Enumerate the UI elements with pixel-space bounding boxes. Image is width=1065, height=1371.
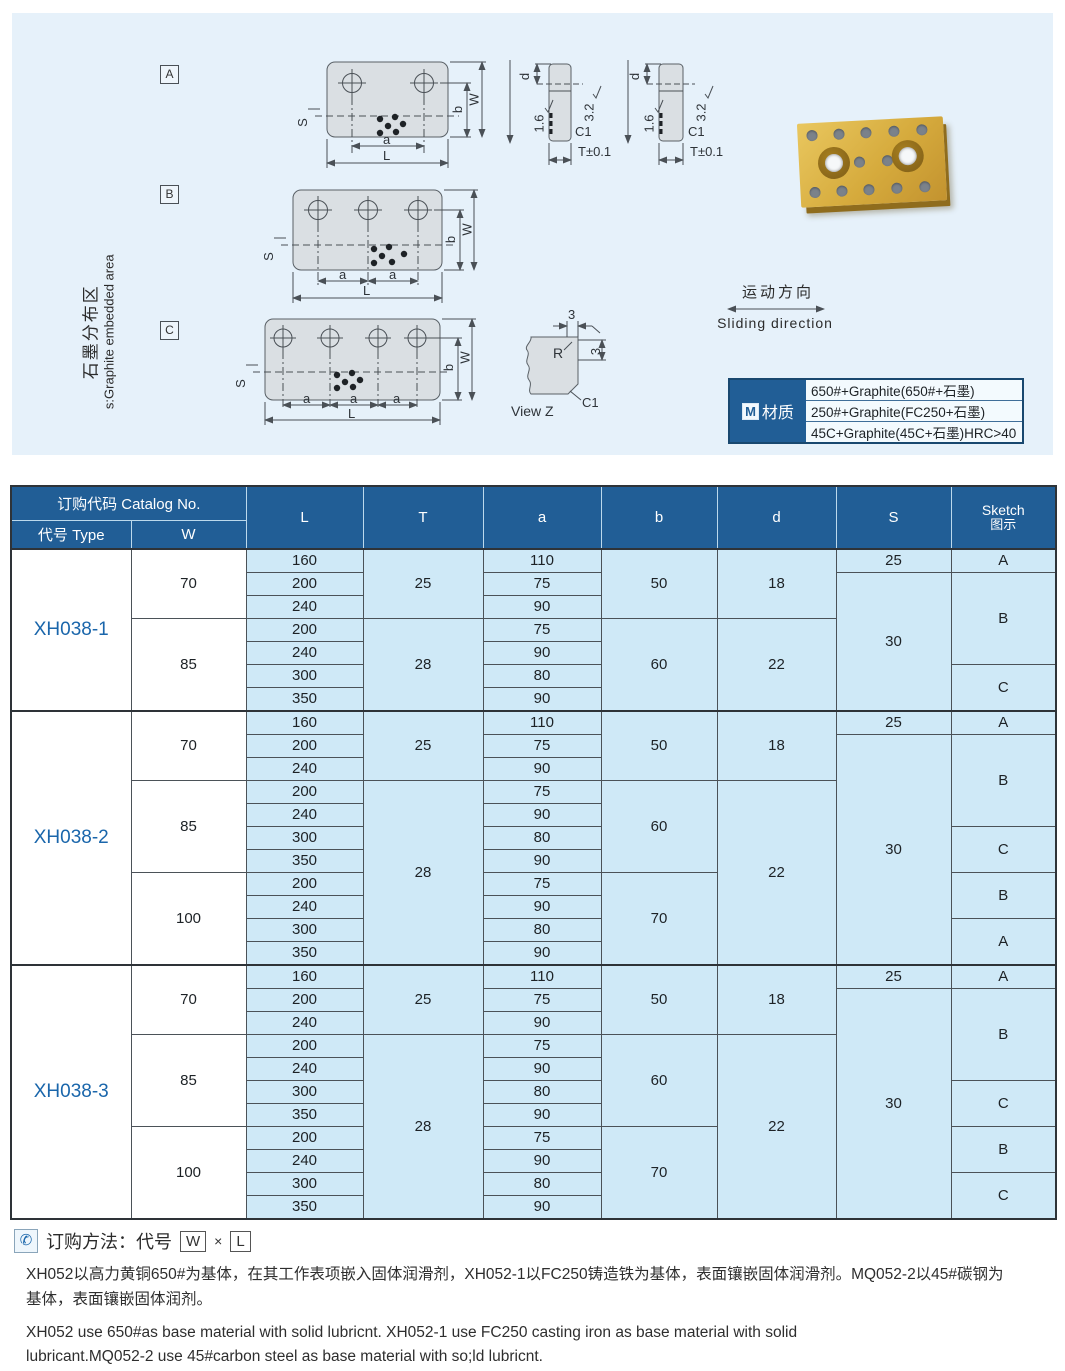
spec-cell: 90 xyxy=(483,596,601,619)
spec-cell: 350 xyxy=(246,1196,363,1220)
header-col-d: d xyxy=(717,486,836,549)
header-col-w: W xyxy=(131,521,246,550)
spec-cell: B xyxy=(951,989,1056,1081)
spec-cell: 25 xyxy=(363,549,483,619)
spec-cell: 90 xyxy=(483,1150,601,1173)
spec-cell: 300 xyxy=(246,665,363,688)
spec-table: 订购代码 Catalog No. L T a b d S Sketch 图示 代… xyxy=(10,485,1057,1220)
dim-label-w: W xyxy=(458,351,473,363)
view-tag-b: B xyxy=(160,185,179,204)
graphite-area-caption-cn: 石墨分布区 xyxy=(80,217,101,447)
footer: ✆ 订购方法：代号 W × L XH052以高力黄铜650#为基体，在其工作表项… xyxy=(14,1228,1050,1369)
order-method-label: 订购方法：代号 xyxy=(46,1228,172,1254)
spec-cell: 75 xyxy=(483,1035,601,1058)
spec-cell: 85 xyxy=(131,1035,246,1127)
dim-label-a: a xyxy=(383,132,390,147)
spec-cell: 300 xyxy=(246,919,363,942)
spec-cell: 100 xyxy=(131,873,246,966)
dim-label-l: L xyxy=(363,283,370,298)
type-cell: XH038-3 xyxy=(11,965,131,1219)
spec-cell: 80 xyxy=(483,919,601,942)
spec-cell: 28 xyxy=(363,781,483,966)
material-table: M 材质 650#+Graphite(650#+石墨) 250#+Graphit… xyxy=(728,378,1024,444)
spec-cell: 300 xyxy=(246,1081,363,1104)
view-z-label: View Z xyxy=(511,403,554,419)
dim-label-a: a xyxy=(303,391,310,406)
spec-table-body: XH038-17016025110501825A2007530B24090852… xyxy=(11,549,1056,1219)
order-code-w-box: W xyxy=(180,1231,206,1252)
spec-cell: 75 xyxy=(483,989,601,1012)
dim-label-l: L xyxy=(348,406,355,421)
spec-cell: 200 xyxy=(246,1127,363,1150)
spec-cell: 240 xyxy=(246,896,363,919)
spec-cell: 50 xyxy=(601,549,717,619)
spec-cell: C xyxy=(951,1081,1056,1127)
spec-cell: 90 xyxy=(483,1058,601,1081)
drawing-panel: 石墨分布区 s:Graphite embedded area A B C S a… xyxy=(12,13,1053,455)
header-col-a: a xyxy=(483,486,601,549)
spec-cell: 30 xyxy=(836,573,951,712)
spec-cell: 50 xyxy=(601,711,717,781)
spec-cell: 160 xyxy=(246,549,363,573)
spec-cell: 300 xyxy=(246,1173,363,1196)
spec-cell: 350 xyxy=(246,1104,363,1127)
dim-label-c1: C1 xyxy=(688,124,705,139)
graphite-area-caption-en: s:Graphite embedded area xyxy=(102,217,118,447)
dim-label-t: T±0.1 xyxy=(690,144,723,159)
dim-label-d: d xyxy=(517,73,532,80)
spec-cell: A xyxy=(951,919,1056,966)
dim-label-t: T±0.1 xyxy=(578,144,611,159)
spec-cell: 100 xyxy=(131,1127,246,1220)
spec-cell: 90 xyxy=(483,804,601,827)
dim-label-s: S xyxy=(295,118,310,127)
dim-label-l: L xyxy=(383,148,390,163)
spec-cell: 60 xyxy=(601,781,717,873)
dim-label-16: 1.6 xyxy=(642,114,657,132)
spec-cell: C xyxy=(951,827,1056,873)
mounting-hole xyxy=(817,146,851,180)
dim-label-b: b xyxy=(450,106,465,113)
description-en: XH052 use 650#as base material with soli… xyxy=(26,1321,886,1369)
dim-label-c1: C1 xyxy=(582,395,599,410)
spec-cell: 50 xyxy=(601,965,717,1035)
spec-cell: B xyxy=(951,735,1056,827)
graphite-area-caption: 石墨分布区 s:Graphite embedded area xyxy=(80,217,118,447)
spec-cell: 70 xyxy=(131,549,246,619)
type-cell: XH038-1 xyxy=(11,549,131,711)
sliding-direction-cn: 运动方向 xyxy=(728,281,828,302)
material-label: M 材质 xyxy=(730,380,806,442)
spec-cell: 90 xyxy=(483,758,601,781)
spec-cell: 70 xyxy=(131,711,246,781)
dim-label-c1: C1 xyxy=(575,124,592,139)
spec-cell: 28 xyxy=(363,619,483,712)
sliding-direction-en: Sliding direction xyxy=(710,315,840,331)
dim-label-3: 3 xyxy=(588,348,603,355)
spec-cell: 240 xyxy=(246,804,363,827)
dim-label-r: R xyxy=(553,345,563,361)
header-col-t: T xyxy=(363,486,483,549)
spec-cell: 240 xyxy=(246,1058,363,1081)
spec-cell: 75 xyxy=(483,619,601,642)
spec-cell: A xyxy=(951,965,1056,989)
mounting-hole xyxy=(891,139,925,173)
spec-cell: 160 xyxy=(246,711,363,735)
spec-cell: 85 xyxy=(131,619,246,712)
spec-cell: 28 xyxy=(363,1035,483,1220)
view-tag-c: C xyxy=(160,321,179,340)
view-tag-a: A xyxy=(160,65,179,84)
dim-label-a: a xyxy=(393,391,400,406)
spec-cell: 70 xyxy=(601,873,717,966)
spec-cell: 200 xyxy=(246,781,363,804)
material-m-icon: M xyxy=(742,403,759,420)
material-row: 250#+Graphite(FC250+石墨) xyxy=(806,401,1022,422)
spec-cell: 30 xyxy=(836,735,951,966)
spec-cell: 200 xyxy=(246,989,363,1012)
plate-a-drawing xyxy=(308,62,486,168)
spec-cell: 25 xyxy=(363,711,483,781)
dim-label-s: S xyxy=(261,252,276,261)
spec-cell: 200 xyxy=(246,873,363,896)
spec-cell: 110 xyxy=(483,711,601,735)
spec-cell: 75 xyxy=(483,1127,601,1150)
spec-cell: B xyxy=(951,873,1056,919)
spec-cell: 350 xyxy=(246,850,363,873)
spec-cell: 240 xyxy=(246,1150,363,1173)
multiply-sign: × xyxy=(214,1233,222,1249)
spec-cell: C xyxy=(951,665,1056,712)
spec-cell: 90 xyxy=(483,896,601,919)
spec-cell: 75 xyxy=(483,781,601,804)
spec-cell: 240 xyxy=(246,642,363,665)
spec-cell: 25 xyxy=(363,965,483,1035)
catalog-page: 石墨分布区 s:Graphite embedded area A B C S a… xyxy=(0,0,1065,1371)
material-row: 45C+Graphite(45C+石墨)HRC>40 xyxy=(806,422,1022,442)
spec-cell: 80 xyxy=(483,827,601,850)
dim-label-32: 3.2 xyxy=(582,103,597,121)
spec-cell: 75 xyxy=(483,735,601,758)
dim-label-a: a xyxy=(350,391,357,406)
dim-label-16: 1.6 xyxy=(532,114,547,132)
spec-cell: 300 xyxy=(246,827,363,850)
spec-cell: 200 xyxy=(246,619,363,642)
spec-cell: 80 xyxy=(483,1173,601,1196)
spec-cell: 25 xyxy=(836,965,951,989)
spec-cell: 200 xyxy=(246,573,363,596)
spec-cell: 25 xyxy=(836,549,951,573)
spec-cell: 90 xyxy=(483,942,601,966)
dim-label-32: 3.2 xyxy=(694,103,709,121)
view-z-drawing xyxy=(526,321,606,400)
spec-cell: 90 xyxy=(483,850,601,873)
spec-cell: 85 xyxy=(131,781,246,873)
spec-cell: 200 xyxy=(246,1035,363,1058)
phone-icon: ✆ xyxy=(14,1229,38,1253)
bronze-plate-image xyxy=(797,116,947,208)
spec-cell: 90 xyxy=(483,1012,601,1035)
spec-cell: 110 xyxy=(483,965,601,989)
spec-cell: 70 xyxy=(131,965,246,1035)
dim-label-3: 3 xyxy=(568,307,575,322)
order-code-l-box: L xyxy=(230,1231,250,1252)
dim-label-s: S xyxy=(233,379,248,388)
material-row: 650#+Graphite(650#+石墨) xyxy=(806,380,1022,401)
spec-cell: 240 xyxy=(246,758,363,781)
spec-cell: 22 xyxy=(717,619,836,712)
spec-cell: 350 xyxy=(246,688,363,712)
spec-cell: A xyxy=(951,711,1056,735)
header-col-type: 代号 Type xyxy=(11,521,131,550)
header-col-sketch: Sketch 图示 xyxy=(951,486,1056,549)
spec-cell: B xyxy=(951,1127,1056,1173)
spec-cell: A xyxy=(951,549,1056,573)
spec-cell: 90 xyxy=(483,642,601,665)
spec-cell: 18 xyxy=(717,711,836,781)
spec-cell: 90 xyxy=(483,1104,601,1127)
spec-cell: 90 xyxy=(483,1196,601,1220)
spec-cell: 22 xyxy=(717,781,836,966)
header-col-s: S xyxy=(836,486,951,549)
spec-cell: C xyxy=(951,1173,1056,1220)
plate-b-drawing xyxy=(274,190,478,303)
spec-cell: 200 xyxy=(246,735,363,758)
dim-label-w: W xyxy=(460,223,475,235)
dim-label-a: a xyxy=(389,267,396,282)
spec-cell: B xyxy=(951,573,1056,665)
product-photo xyxy=(795,110,955,214)
spec-cell: 18 xyxy=(717,549,836,619)
material-label-text: 材质 xyxy=(762,399,794,423)
type-cell: XH038-2 xyxy=(11,711,131,965)
spec-cell: 80 xyxy=(483,665,601,688)
dim-label-a: a xyxy=(339,267,346,282)
header-col-b: b xyxy=(601,486,717,549)
spec-cell: 240 xyxy=(246,1012,363,1035)
spec-cell: 70 xyxy=(601,1127,717,1220)
spec-cell: 22 xyxy=(717,1035,836,1220)
spec-cell: 18 xyxy=(717,965,836,1035)
spec-cell: 80 xyxy=(483,1081,601,1104)
header-col-l: L xyxy=(246,486,363,549)
spec-cell: 25 xyxy=(836,711,951,735)
spec-cell: 75 xyxy=(483,573,601,596)
dim-label-d: d xyxy=(627,73,642,80)
plate-c-drawing xyxy=(246,319,476,425)
spec-cell: 90 xyxy=(483,688,601,712)
spec-cell: 60 xyxy=(601,1035,717,1127)
header-catalog-no: 订购代码 Catalog No. xyxy=(11,486,246,521)
description-cn: XH052以高力黄铜650#为基体，在其工作表项嵌入固体润滑剂，XH052-1以… xyxy=(26,1263,1016,1313)
spec-cell: 350 xyxy=(246,942,363,966)
spec-cell: 240 xyxy=(246,596,363,619)
order-method-line: ✆ 订购方法：代号 W × L xyxy=(14,1228,1050,1254)
spec-cell: 110 xyxy=(483,549,601,573)
dim-label-b: b xyxy=(443,236,458,243)
spec-cell: 160 xyxy=(246,965,363,989)
spec-cell: 60 xyxy=(601,619,717,712)
dim-label-w: W xyxy=(467,93,482,105)
spec-cell: 75 xyxy=(483,873,601,896)
dim-label-b: b xyxy=(441,364,456,371)
spec-cell: 30 xyxy=(836,989,951,1220)
